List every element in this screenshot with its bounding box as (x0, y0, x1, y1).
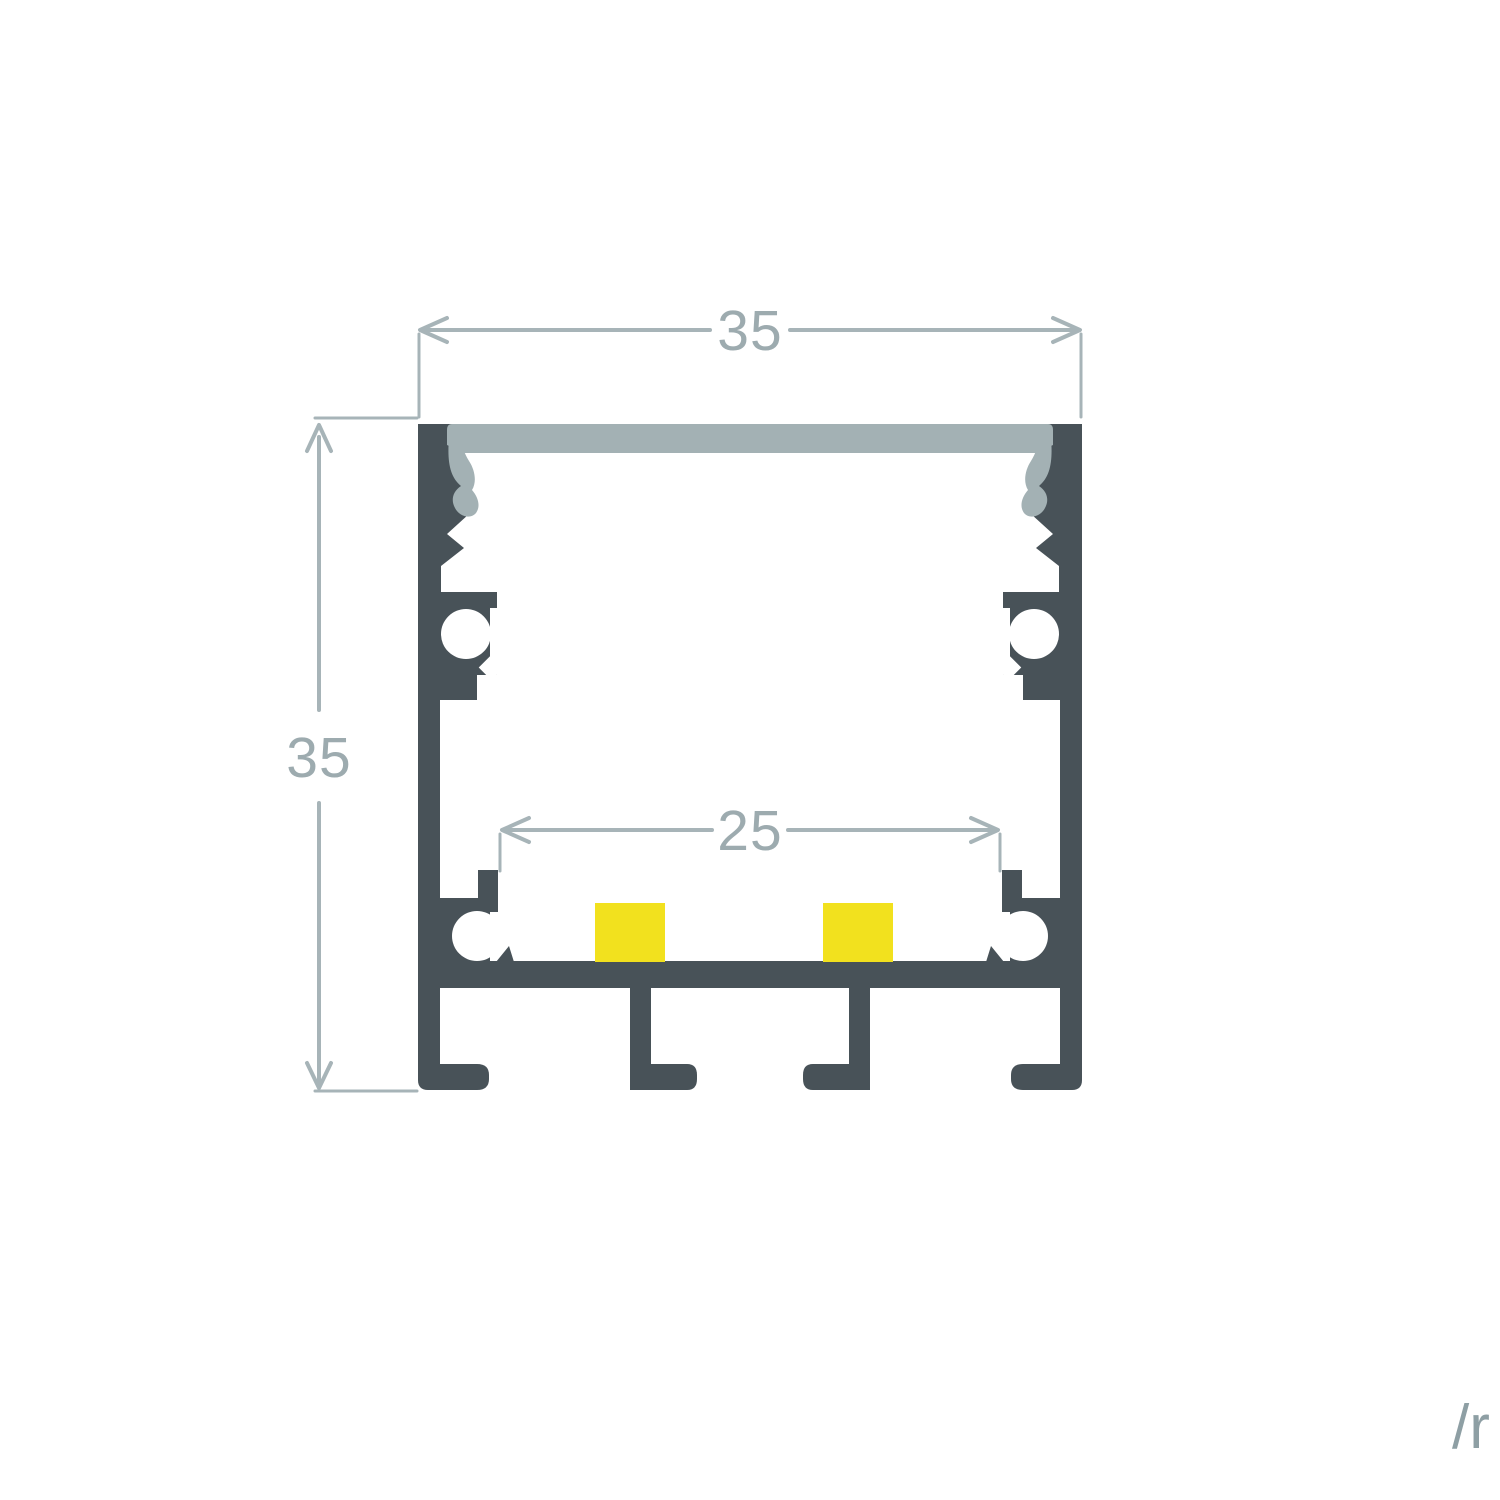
diffuser-top (447, 424, 1053, 453)
label-inner-width: 25 (717, 799, 782, 863)
outer-foot (418, 1064, 489, 1090)
mounting-leg (630, 986, 697, 1090)
led-mounting-plate (418, 961, 1082, 988)
screw-hole (441, 609, 491, 659)
screw-hole (452, 911, 502, 961)
brand-watermark: /r (1452, 1392, 1490, 1463)
label-outer-width: 35 (717, 299, 782, 363)
diffuser (447, 424, 1053, 517)
led-strip (595, 903, 893, 962)
label-outer-height: 35 (286, 726, 351, 790)
profile-left-half (418, 424, 697, 1090)
led-pad-right (823, 903, 893, 962)
lower-screw-boss (438, 870, 514, 962)
dimension-labels: 35 35 25 (286, 299, 782, 863)
diagram-canvas: 35 35 25 (0, 0, 1500, 1500)
profile-right-half (803, 424, 1082, 1090)
profile-cross-section (418, 424, 1082, 1090)
led-pad-left (595, 903, 665, 962)
profile-diagram: 35 35 25 (0, 0, 1500, 1500)
